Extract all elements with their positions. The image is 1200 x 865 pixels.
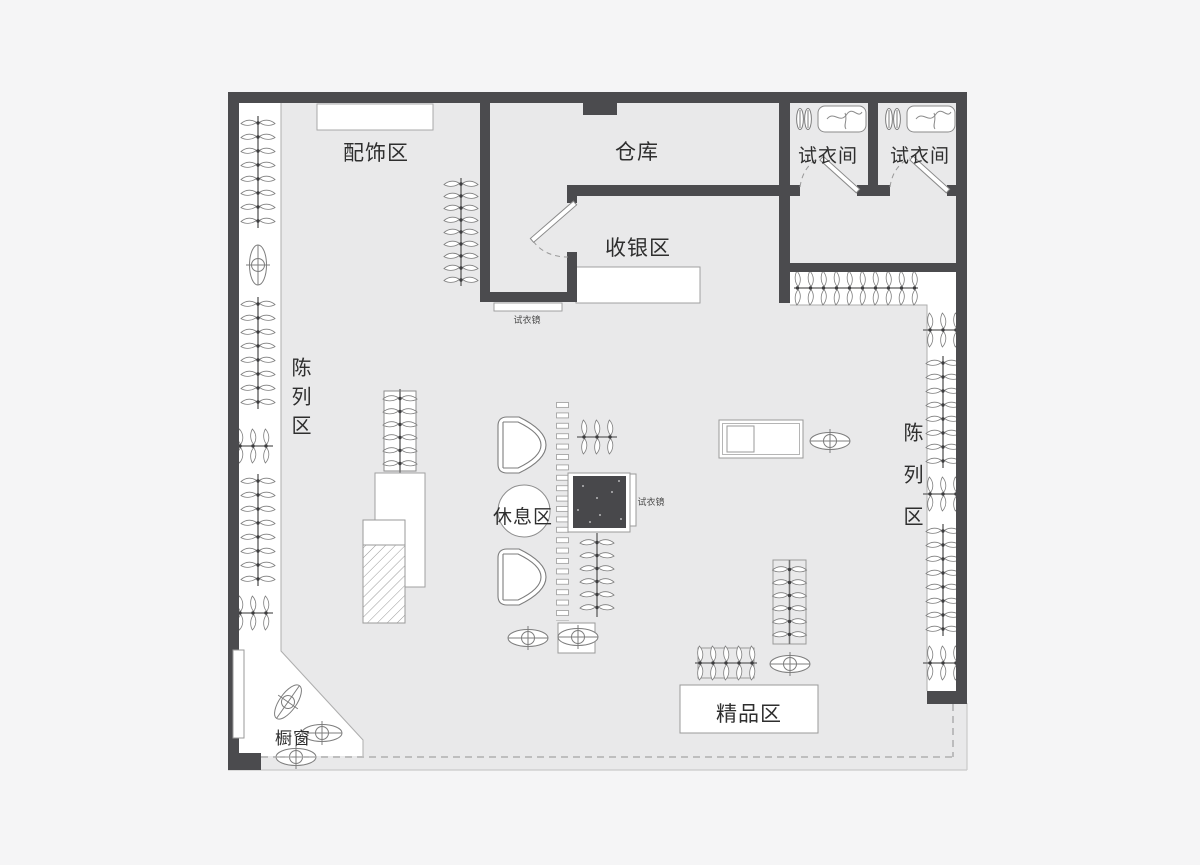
label-fitting-mirror-2: 试衣镜 [637,495,664,508]
floor-plan: 配饰区 仓库 试衣间 试衣间 收银区 试衣镜 试衣镜 休息区 陈列区 陈列区 精… [0,0,1200,865]
oval-display-lounge-2 [558,623,598,653]
display-cabinet [719,420,803,458]
wall-top [228,92,967,103]
cashier-counter [576,267,700,303]
wall-display-right [790,263,957,272]
bench-icon [818,106,866,132]
floor-plan-drawing [0,0,1200,865]
wall-fitting-left [779,103,790,303]
label-display-area-right: 陈列区 [897,422,926,548]
label-cashier-area: 收银区 [605,232,671,262]
label-shop-window: 橱窗 [275,724,311,749]
hatched-display-table [363,520,405,623]
label-boutique-area: 精品区 [716,698,782,728]
wall-interior-vertical [480,103,490,302]
rug [568,473,630,532]
label-fitting-room-2: 试衣间 [890,141,950,168]
wall-door-stub-lower [567,252,577,302]
bench-icon [907,106,955,132]
wall-fitting2-stub-right [947,185,967,196]
label-warehouse: 仓库 [615,136,659,166]
clothes-rack-accessories [444,178,478,286]
wall-fitting-stub-middle [857,185,890,196]
wall-mirror-strip [233,650,244,738]
wall-end-bottom-right [927,691,967,704]
wall-corner-bottom-left [228,753,261,770]
label-lounge-area: 休息区 [493,502,553,529]
fitting-mirror-lounge [630,474,636,526]
label-display-area-left: 陈列区 [285,357,314,444]
wall-column-top [583,103,617,115]
label-fitting-mirror-1: 试衣镜 [513,313,540,326]
accessories-shelf [317,104,433,130]
wall-fitting-divider [868,103,878,196]
wall-right [956,92,967,704]
wall-fitting1-stub-left [779,185,800,196]
label-fitting-room-1: 试衣间 [798,141,858,168]
clothes-rack-center-top [577,420,617,454]
wall-interior-bottom [480,292,568,302]
fitting-mirror-cashier [494,303,562,311]
caged-clothes-rack [383,389,417,473]
wall-door-stub-upper [567,185,577,203]
label-accessories-area: 配饰区 [343,137,409,167]
wall-warehouse-south [567,185,790,196]
slat-display [556,402,569,621]
